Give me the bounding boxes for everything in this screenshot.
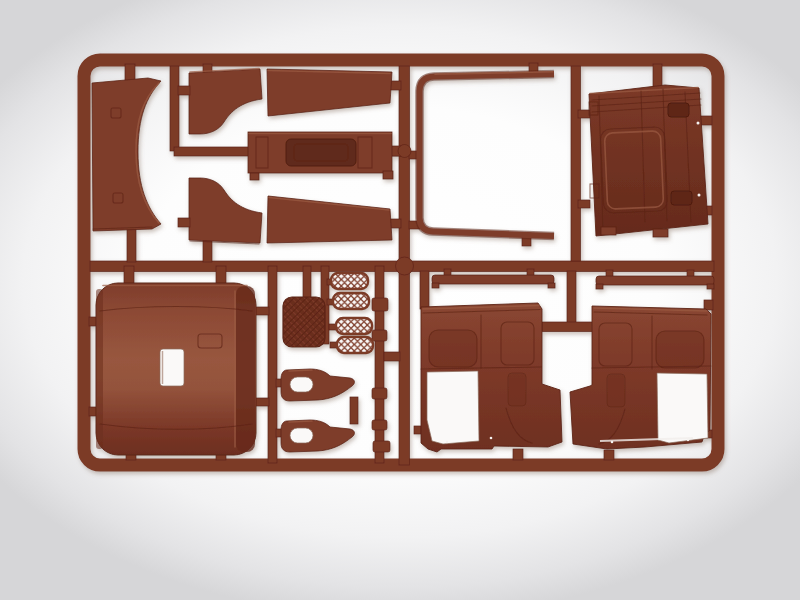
cab-rear-valance — [248, 132, 393, 180]
armrest-opening — [290, 377, 313, 392]
ejector-mark — [698, 194, 701, 197]
step-grille-2 — [333, 293, 369, 309]
runner-segment — [268, 266, 277, 463]
ejector-mark — [687, 439, 689, 441]
runner-bridge — [542, 322, 593, 332]
strip-hook — [707, 284, 714, 289]
wind-deflector — [92, 78, 161, 231]
step-grille-1 — [331, 273, 368, 289]
window-cutout — [657, 373, 708, 443]
runner-segment — [571, 66, 581, 261]
runner-bridge — [384, 352, 400, 361]
roof-edge-shade — [96, 289, 103, 449]
runner-nub — [372, 388, 387, 399]
trim-strip-left — [432, 275, 555, 288]
roof-fairing-lower — [178, 178, 262, 244]
runner-junction-node — [398, 145, 411, 158]
armrest-2 — [281, 420, 354, 452]
runner-junction-node — [396, 257, 414, 275]
photo-background — [0, 0, 800, 600]
gate — [350, 397, 358, 424]
roof-slat-upper — [267, 69, 392, 116]
runner-nub — [372, 420, 387, 430]
gate — [216, 266, 226, 285]
gate — [303, 266, 311, 298]
door-recess — [429, 330, 477, 367]
gate — [604, 450, 614, 460]
trim-strip-right — [596, 276, 714, 289]
ejector-mark — [446, 441, 448, 443]
ejector-mark — [697, 122, 700, 125]
cab-roof — [96, 283, 256, 455]
sprue-photo — [0, 0, 800, 600]
runner-segment — [375, 266, 384, 463]
roof-fairing-upper — [178, 69, 262, 135]
gate — [704, 300, 713, 310]
strip-hook — [548, 283, 555, 288]
panel-foot — [250, 173, 259, 180]
gate — [578, 200, 590, 208]
panel-foot — [653, 229, 668, 237]
gate — [420, 271, 429, 309]
door-recess — [656, 331, 704, 368]
window-cutout — [427, 371, 479, 444]
gate — [578, 110, 590, 118]
runner-nub — [372, 298, 388, 311]
strip-hook — [432, 283, 439, 288]
gate — [567, 271, 576, 326]
step-grille-4 — [337, 337, 373, 353]
cabin-mat — [283, 297, 325, 347]
runner-nub — [373, 441, 390, 452]
windshield-frame — [420, 72, 555, 236]
runner-nub — [372, 330, 387, 341]
gate — [513, 449, 523, 460]
latch-detail — [671, 191, 692, 205]
cab-back-panel — [589, 85, 708, 237]
gate — [414, 426, 421, 434]
door-card-left — [421, 303, 562, 452]
gate — [124, 266, 134, 285]
ejector-mark — [490, 437, 493, 440]
gate — [178, 86, 190, 95]
gate — [127, 228, 136, 262]
panel-foot — [383, 171, 393, 179]
runner-segment — [170, 66, 179, 151]
roof-slat-lower — [267, 196, 392, 243]
door-pocket — [508, 373, 526, 406]
ejector-mark — [611, 441, 614, 444]
gate — [203, 240, 212, 262]
sunroof-opening — [160, 349, 184, 386]
recessed-panel — [286, 139, 356, 166]
strip-hook — [596, 284, 603, 289]
armrest-opening — [290, 428, 313, 443]
gate — [178, 218, 190, 227]
armrest-1 — [281, 369, 354, 401]
door-pocket — [607, 374, 625, 407]
latch-detail — [668, 103, 689, 117]
panel-foot — [601, 227, 616, 235]
step-grille-3 — [336, 318, 372, 334]
